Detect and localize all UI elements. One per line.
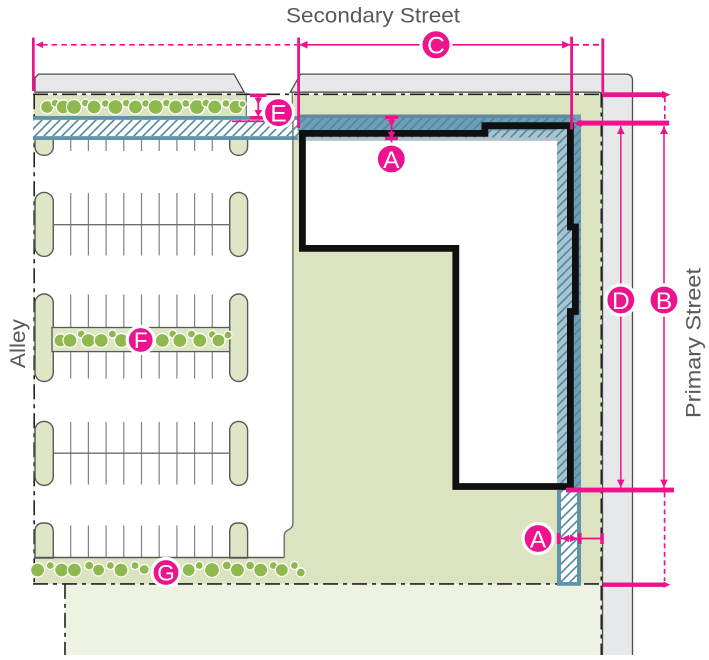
svg-text:D: D xyxy=(612,288,630,315)
svg-text:E: E xyxy=(270,101,286,128)
svg-text:C: C xyxy=(427,33,445,60)
svg-text:B: B xyxy=(656,288,672,315)
svg-text:Alley: Alley xyxy=(6,319,30,368)
svg-text:Primary Street: Primary Street xyxy=(682,268,706,418)
svg-text:F: F xyxy=(134,328,148,353)
svg-text:A: A xyxy=(530,526,547,553)
svg-text:G: G xyxy=(157,561,175,586)
svg-text:Secondary Street: Secondary Street xyxy=(286,4,460,28)
svg-text:A: A xyxy=(383,147,400,174)
